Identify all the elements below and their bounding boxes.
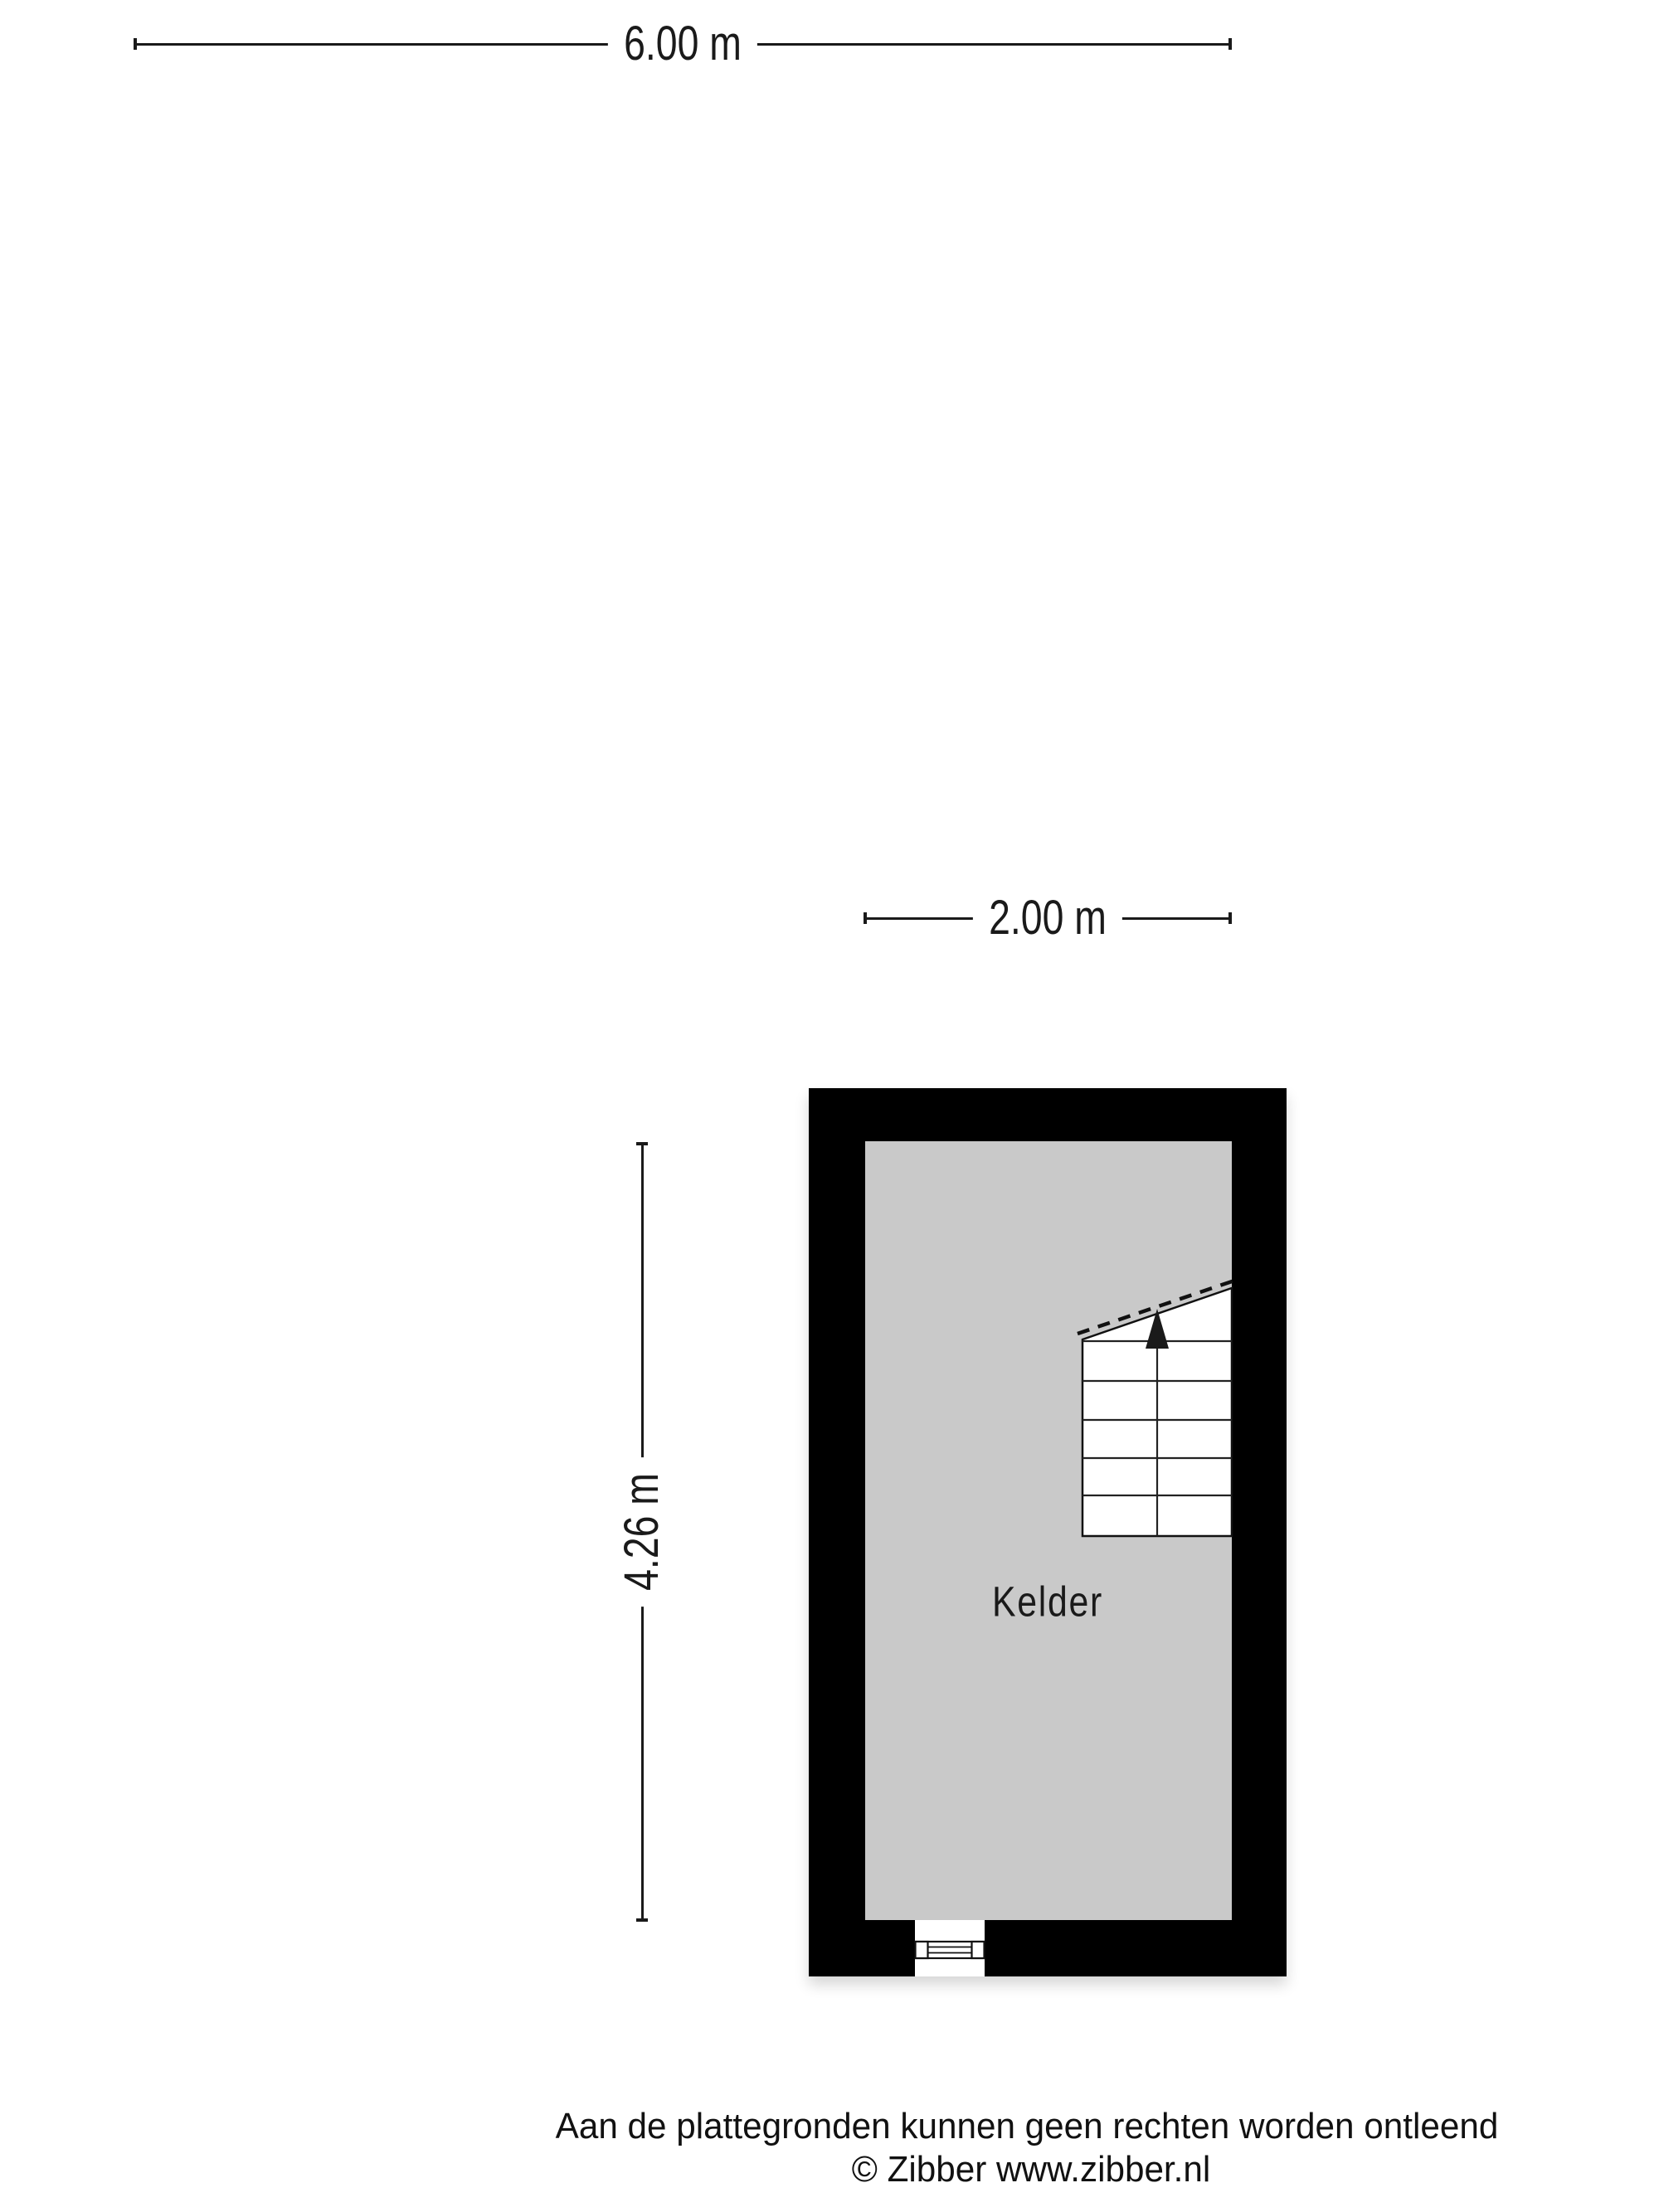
kelder-floorplan (809, 1088, 1287, 1976)
dimension-label-room-height: 4.26 m (617, 1457, 667, 1607)
dimension-tick-right (1228, 38, 1232, 50)
dimension-line-room-height: 4.26 m (636, 1142, 648, 1922)
dimension-line-total-width: 6.00 m (134, 38, 1232, 50)
footer-disclaimer: Aan de plattegronden kunnen geen rechten… (556, 2106, 1499, 2147)
dimension-line-room-width: 2.00 m (864, 912, 1232, 924)
dimension-label-room-width: 2.00 m (973, 893, 1122, 943)
window-symbol (916, 1942, 985, 1958)
room-label-kelder: Kelder (992, 1578, 1103, 1626)
dimension-label-total-width: 6.00 m (608, 19, 757, 69)
dimension-tick-right (1228, 912, 1232, 924)
footer-copyright: © Zibber www.zibber.nl (852, 2149, 1211, 2190)
dimension-tick-bottom (636, 1918, 648, 1922)
